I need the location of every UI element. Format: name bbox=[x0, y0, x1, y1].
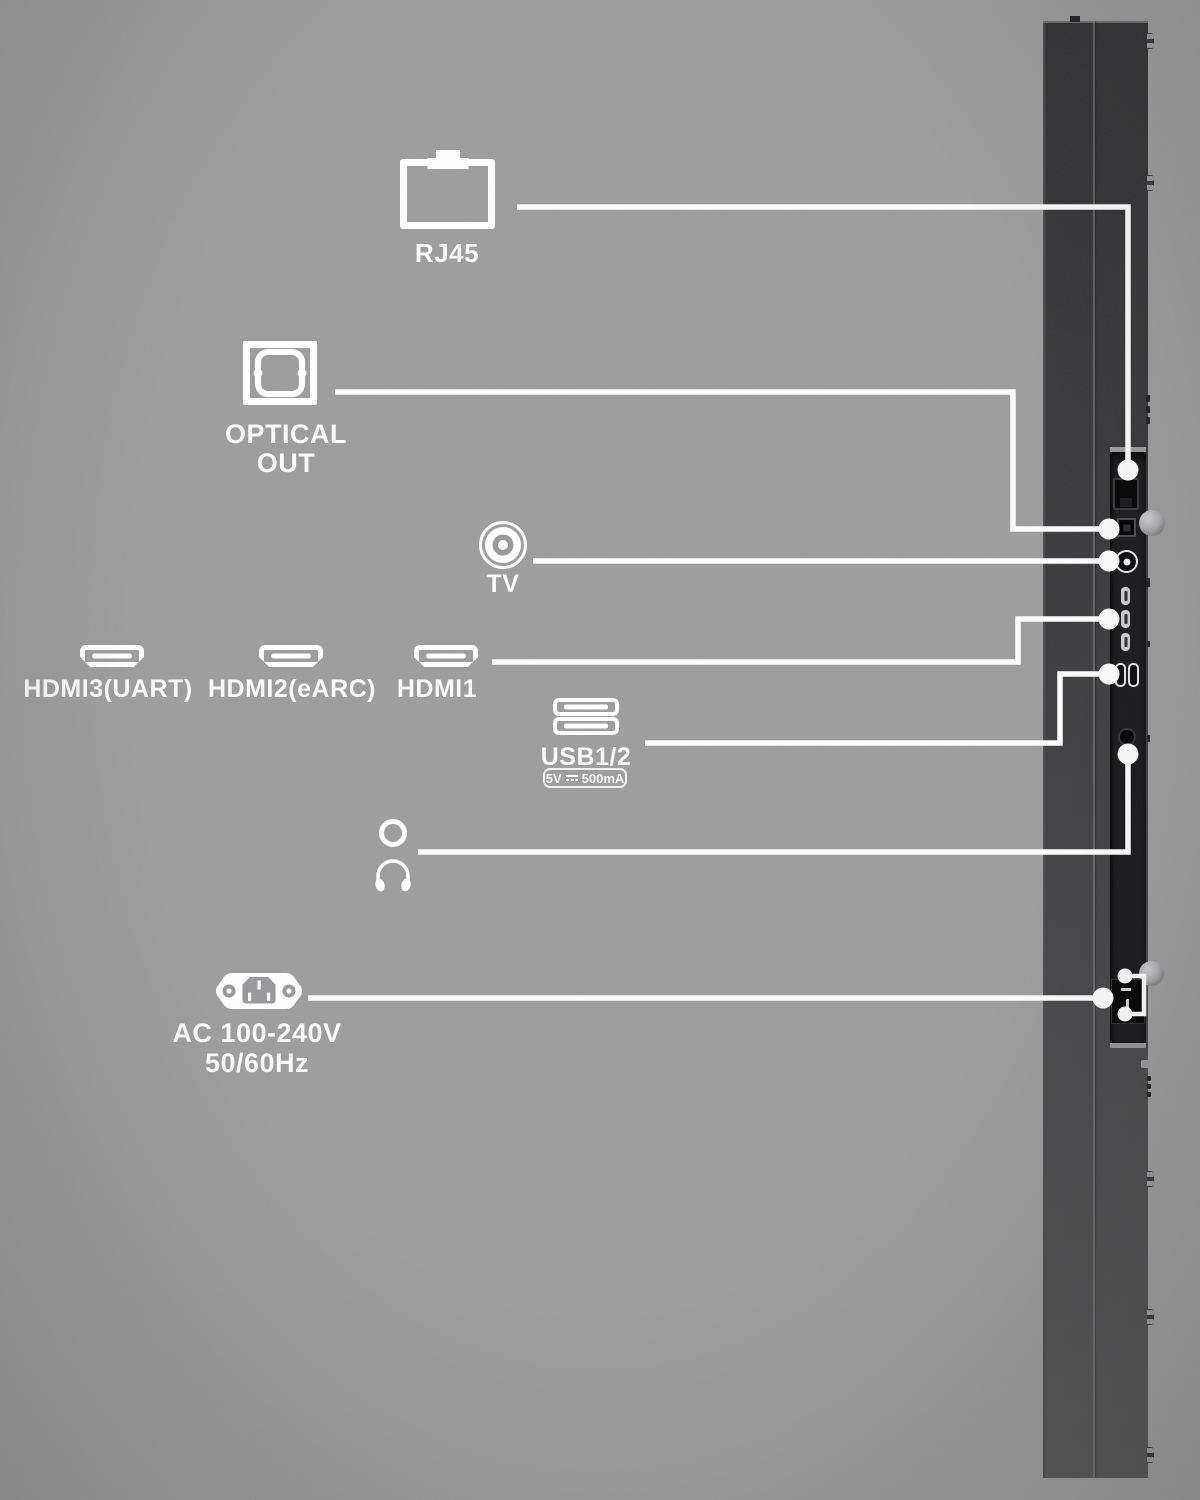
optical-port bbox=[1117, 518, 1136, 537]
usb-badge-voltage: 5V bbox=[546, 771, 562, 786]
antenna-port bbox=[1115, 550, 1138, 573]
hdmi-port-3 bbox=[1121, 633, 1130, 651]
tv-antenna-label: TV bbox=[463, 570, 543, 599]
vent-mark bbox=[1147, 641, 1150, 647]
ac-power-label: AC 100-240V 50/60Hz bbox=[157, 1018, 357, 1078]
ac-power-icon bbox=[215, 972, 303, 1010]
usb-port-1 bbox=[1115, 663, 1126, 687]
edge-bump bbox=[1139, 510, 1165, 536]
hdmi3-icon bbox=[80, 645, 144, 667]
port-recess-panel bbox=[1110, 447, 1146, 1048]
dc-symbol-icon bbox=[566, 775, 578, 781]
hdmi2-icon bbox=[259, 645, 323, 667]
vent-mark bbox=[1146, 417, 1150, 424]
rj45-port bbox=[1113, 478, 1139, 510]
vent-mark bbox=[1147, 1084, 1151, 1089]
tv-top-tab bbox=[1070, 16, 1080, 22]
edge-clip bbox=[1147, 1309, 1154, 1325]
edge-tab bbox=[1141, 1060, 1151, 1068]
optical-out-inner-icon bbox=[251, 348, 309, 398]
hdmi-port-1 bbox=[1121, 587, 1130, 605]
optical-out-label: OPTICAL OUT bbox=[201, 420, 371, 478]
vent-mark bbox=[1146, 578, 1150, 587]
hdmi3-label: HDMI3(UART) bbox=[18, 675, 198, 704]
headphone-icon bbox=[372, 856, 414, 894]
rj45-icon bbox=[400, 159, 495, 229]
headphone-jack-icon bbox=[379, 819, 407, 847]
usb2-icon bbox=[553, 717, 619, 735]
usb-power-badge: 5V 500mA bbox=[543, 768, 627, 788]
tv-antenna-icon-center bbox=[485, 527, 521, 563]
edge-clip bbox=[1147, 1447, 1154, 1463]
tv-ports-diagram: RJ45 OPTICAL OUT TV HDMI3(UART) HDMI2(eA… bbox=[0, 0, 1200, 1500]
edge-clip bbox=[1147, 1171, 1154, 1187]
usb-port-2 bbox=[1128, 663, 1139, 687]
headphone-port bbox=[1118, 728, 1136, 746]
vent-mark bbox=[1147, 735, 1150, 742]
tv-panel-seam bbox=[1093, 21, 1095, 1478]
hdmi2-label: HDMI2(eARC) bbox=[202, 675, 382, 704]
usb-badge-current: 500mA bbox=[582, 771, 625, 786]
hdmi-port-2 bbox=[1121, 610, 1130, 628]
vent-mark bbox=[1146, 395, 1150, 402]
hdmi1-label: HDMI1 bbox=[377, 675, 497, 704]
ac-power-port bbox=[1111, 979, 1145, 1024]
hdmi1-icon bbox=[414, 645, 478, 667]
edge-clip bbox=[1147, 175, 1154, 191]
rj45-label: RJ45 bbox=[397, 238, 497, 269]
vent-mark bbox=[1147, 1092, 1151, 1097]
vent-mark bbox=[1146, 406, 1150, 413]
vent-mark bbox=[1147, 1076, 1151, 1081]
edge-clip bbox=[1147, 33, 1154, 49]
usb1-icon bbox=[553, 698, 619, 716]
